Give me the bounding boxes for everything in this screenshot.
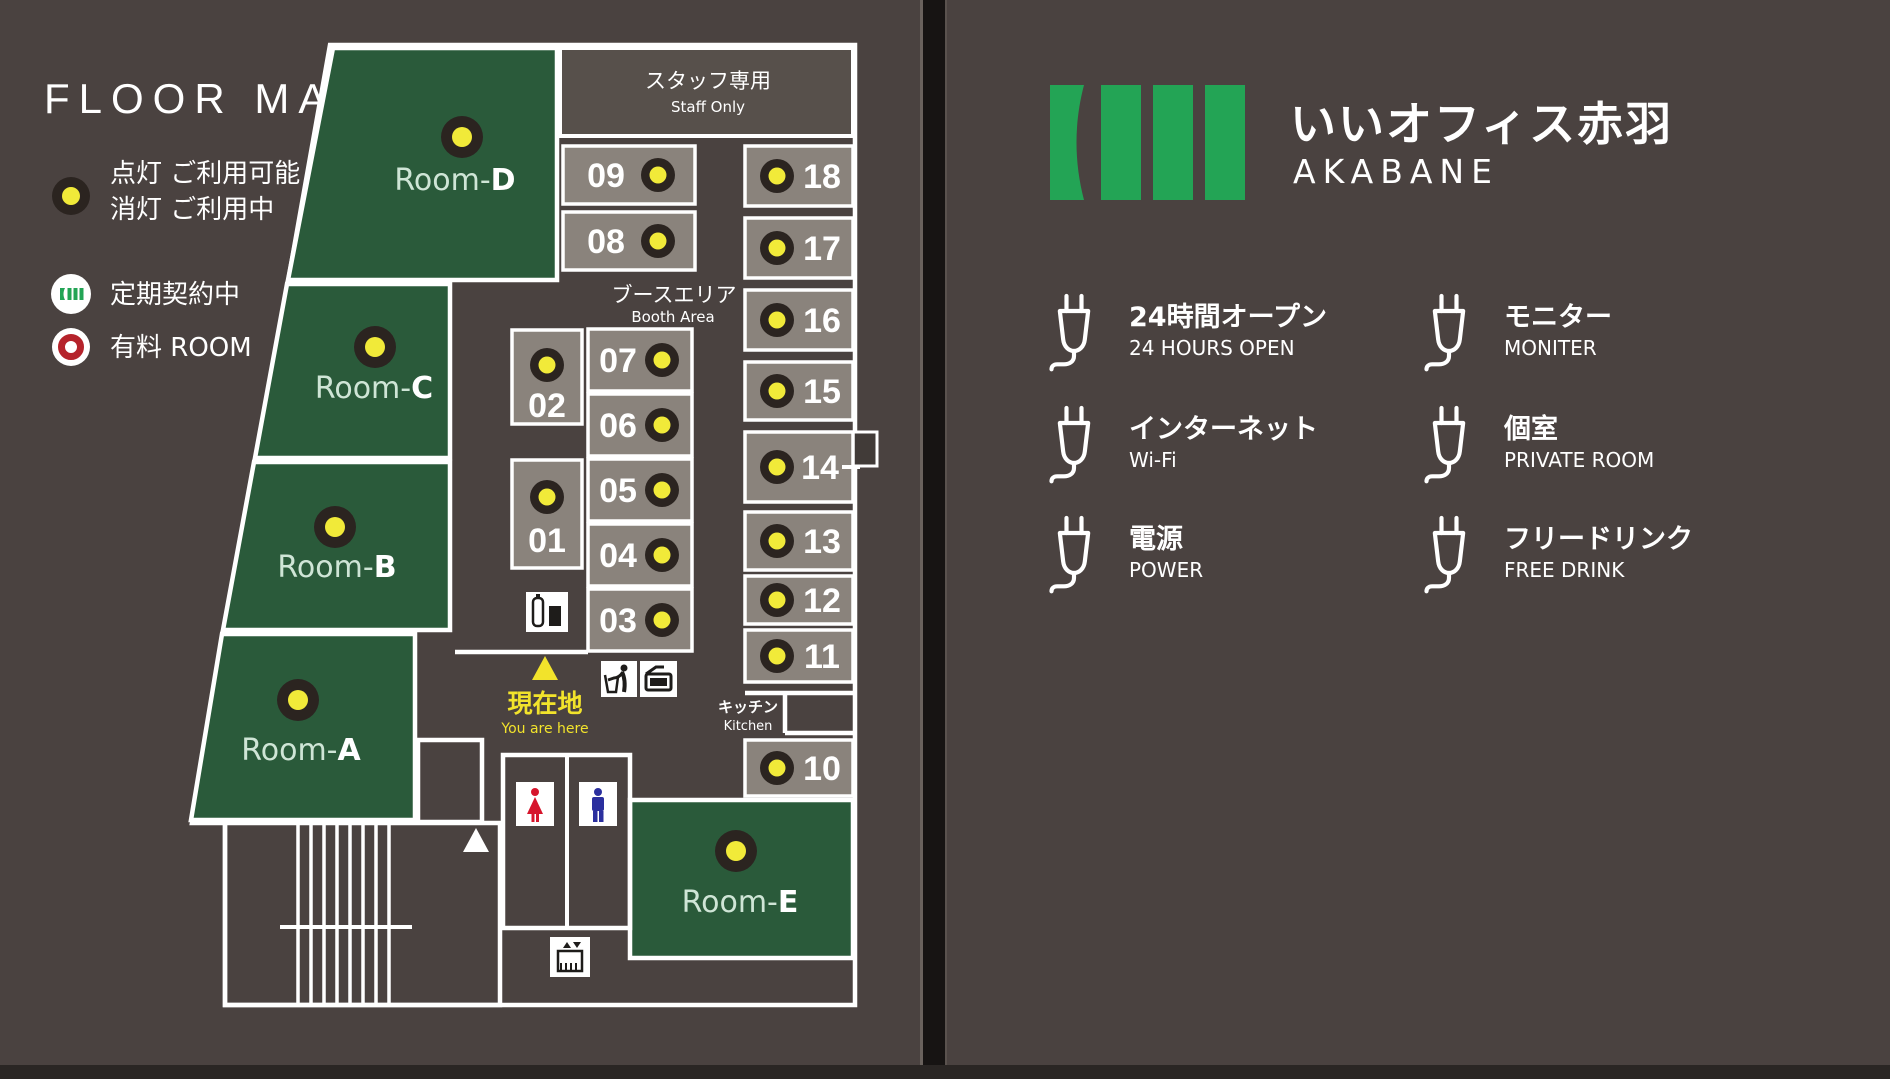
booth-01: 01 bbox=[512, 460, 582, 568]
staff-area-label-jp: スタッフ専用 bbox=[645, 69, 771, 93]
location-label-en: You are here bbox=[500, 721, 588, 737]
amenity-power: 電源POWER bbox=[1049, 510, 1203, 596]
booth-02: 02 bbox=[512, 330, 582, 425]
amenity-private-room: 個室PRIVATE ROOM bbox=[1424, 400, 1654, 486]
contract-icon bbox=[51, 274, 91, 314]
svg-text:08: 08 bbox=[587, 223, 625, 261]
kitchen-area: キッチン Kitchen bbox=[718, 693, 853, 734]
svg-text:04: 04 bbox=[599, 537, 637, 575]
lamp-icon bbox=[760, 583, 794, 617]
legend-contract-label: 定期契約中 bbox=[110, 280, 240, 310]
vending-machine-icon bbox=[526, 592, 568, 632]
room-c: Room-C bbox=[255, 284, 450, 458]
lamp-icon bbox=[530, 480, 564, 514]
svg-text:12: 12 bbox=[803, 582, 841, 620]
lamp-icon bbox=[645, 473, 679, 507]
location-label-jp: 現在地 bbox=[507, 689, 582, 718]
legend-charged-label: 有料 ROOM bbox=[110, 333, 252, 363]
booth-04: 04 bbox=[588, 524, 692, 586]
svg-text:17: 17 bbox=[803, 230, 841, 268]
power-plug-icon bbox=[1049, 288, 1099, 374]
lamp-icon bbox=[645, 538, 679, 572]
svg-text:02: 02 bbox=[528, 387, 566, 425]
lamp-icon bbox=[645, 343, 679, 377]
svg-text:11: 11 bbox=[804, 638, 840, 676]
lamp-icon bbox=[760, 524, 794, 558]
trash-icon bbox=[601, 661, 637, 697]
svg-text:18: 18 bbox=[803, 158, 841, 196]
kitchen-label-jp: キッチン bbox=[718, 698, 778, 716]
power-plug-icon bbox=[1424, 288, 1474, 374]
lamp-icon bbox=[760, 751, 794, 785]
booth-18: 18 bbox=[745, 146, 853, 206]
current-location: 現在地 You are here bbox=[500, 656, 588, 737]
charged-room-icon bbox=[52, 328, 90, 366]
staff-area-label-en: Staff Only bbox=[671, 98, 745, 116]
svg-text:15: 15 bbox=[803, 373, 841, 411]
bottom-edge bbox=[0, 1065, 1890, 1079]
booth-11: 11 bbox=[745, 630, 853, 682]
booth-06: 06 bbox=[588, 394, 692, 456]
legend-lamp-off-label: 消灯 ご利用中 bbox=[110, 195, 274, 225]
svg-text:10: 10 bbox=[803, 750, 841, 788]
location-triangle-icon bbox=[532, 656, 558, 680]
lamp-icon bbox=[645, 408, 679, 442]
booth-10: 10 bbox=[745, 740, 853, 796]
booth-16: 16 bbox=[745, 290, 853, 350]
svg-text:03: 03 bbox=[599, 602, 637, 640]
lamp-icon bbox=[354, 326, 396, 368]
booth-area-label-en: Booth Area bbox=[631, 308, 714, 326]
svg-text:06: 06 bbox=[599, 407, 637, 445]
toilet-block bbox=[503, 755, 630, 928]
booth-08: 08 bbox=[563, 212, 695, 270]
lamp-icon bbox=[760, 639, 794, 673]
lamp-icon bbox=[530, 348, 564, 382]
booth-12: 12 bbox=[745, 576, 853, 624]
kitchen-label-en: Kitchen bbox=[724, 719, 773, 734]
power-plug-icon bbox=[1424, 400, 1474, 486]
lamp-icon bbox=[760, 450, 794, 484]
svg-text:Room-A: Room-A bbox=[241, 733, 361, 768]
booth-17: 17 bbox=[745, 218, 853, 278]
stairs-up-triangle-icon bbox=[463, 828, 489, 852]
lamp-icon bbox=[277, 679, 319, 721]
lamp-legend-icon bbox=[52, 177, 90, 215]
booth-05: 05 bbox=[588, 459, 692, 521]
svg-text:Room-D: Room-D bbox=[394, 163, 515, 198]
svg-text:Room-C: Room-C bbox=[315, 371, 433, 406]
room-e: Room-E bbox=[630, 800, 853, 958]
svg-text:07: 07 bbox=[599, 342, 637, 380]
room-a: Room-A bbox=[191, 634, 415, 820]
room-b: Room-B bbox=[223, 462, 450, 630]
amenity-monitor: モニターMONITER bbox=[1424, 288, 1612, 374]
lamp-icon bbox=[641, 224, 675, 258]
svg-text:Room-E: Room-E bbox=[682, 885, 799, 920]
room-d: Room-D bbox=[288, 48, 557, 280]
brand-title-en: AKABANE bbox=[1293, 152, 1499, 191]
brand-logo bbox=[1050, 85, 1246, 200]
power-plug-icon bbox=[1424, 510, 1474, 596]
amenity-internet: インターネットWi-Fi bbox=[1049, 400, 1318, 486]
lamp-icon bbox=[760, 374, 794, 408]
women-toilet-icon bbox=[516, 782, 554, 826]
legend-lamp-on-label: 点灯 ご利用可能 bbox=[110, 159, 300, 189]
legend: 点灯 ご利用可能 消灯 ご利用中 定期契約中 有料 ROOM bbox=[51, 159, 300, 366]
elevator-icon bbox=[550, 937, 590, 977]
power-plug-icon bbox=[1049, 400, 1099, 486]
svg-text:13: 13 bbox=[803, 523, 841, 561]
amenity-free-drink: フリードリンクFREE DRINK bbox=[1424, 510, 1693, 596]
booth-07: 07 bbox=[588, 329, 692, 391]
lamp-icon bbox=[760, 303, 794, 337]
lamp-icon bbox=[760, 159, 794, 193]
stairs bbox=[225, 823, 500, 1005]
lamp-icon bbox=[641, 158, 675, 192]
lamp-icon bbox=[441, 116, 483, 158]
svg-text:01: 01 bbox=[528, 522, 566, 560]
svg-text:05: 05 bbox=[599, 472, 637, 510]
svg-text:09: 09 bbox=[587, 157, 625, 195]
lamp-icon bbox=[645, 603, 679, 637]
booth-03: 03 bbox=[588, 589, 692, 651]
svg-text:14: 14 bbox=[801, 449, 839, 487]
booth-15: 15 bbox=[745, 362, 853, 420]
brand-title-jp: いいオフィス赤羽 bbox=[1290, 88, 1673, 154]
booth-13: 13 bbox=[745, 512, 853, 570]
booth-area-label-jp: ブースエリア bbox=[612, 283, 737, 307]
lamp-icon bbox=[314, 506, 356, 548]
amenity-24hours: 24時間オープン24 HOURS OPEN bbox=[1049, 288, 1327, 374]
power-plug-icon bbox=[1049, 510, 1099, 596]
floor-map-panel: FLOOR MAP 点灯 ご利用可能 消灯 ご利用中 定期契約中 有料 ROOM bbox=[0, 0, 920, 1079]
copier-icon bbox=[640, 661, 677, 697]
lamp-icon bbox=[760, 231, 794, 265]
booth-09: 09 bbox=[563, 146, 695, 204]
lamp-icon bbox=[715, 830, 757, 872]
floor-map-sign: FLOOR MAP 点灯 ご利用可能 消灯 ご利用中 定期契約中 有料 ROOM bbox=[0, 0, 1890, 1079]
svg-text:16: 16 bbox=[803, 302, 841, 340]
panel-divider bbox=[920, 0, 947, 1079]
men-toilet-icon bbox=[579, 782, 617, 826]
storage-room bbox=[418, 740, 482, 822]
svg-text:Room-B: Room-B bbox=[277, 550, 396, 585]
